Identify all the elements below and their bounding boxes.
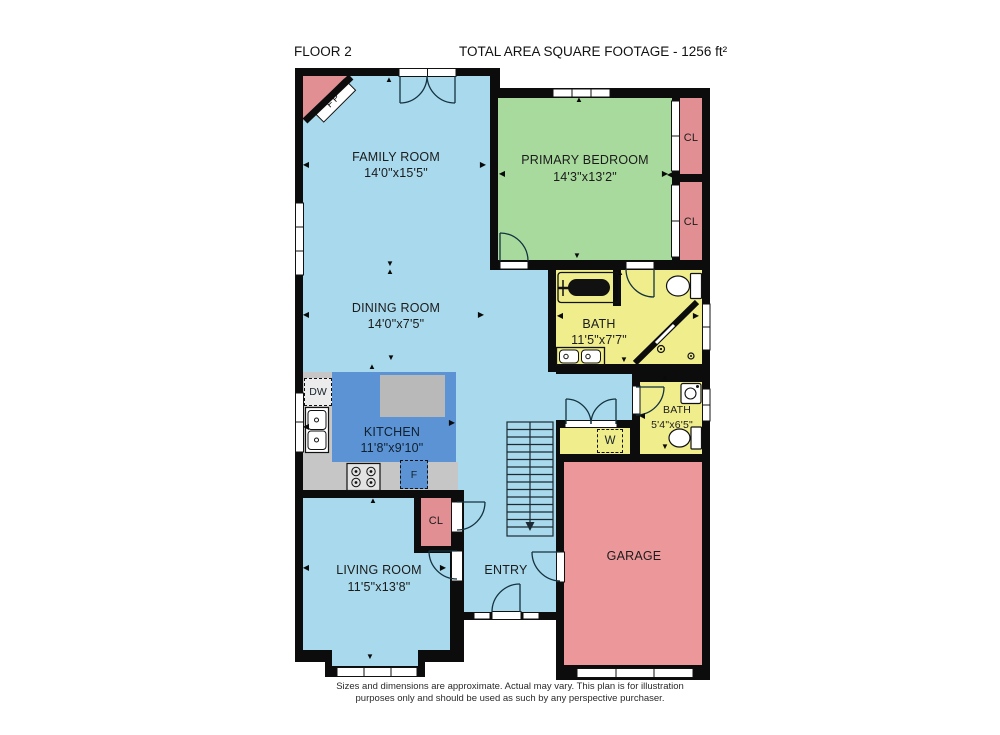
closet-entry-label: CL bbox=[429, 515, 443, 527]
living-room-dims: 11'5"x13'8" bbox=[348, 580, 411, 594]
garage-floor bbox=[564, 462, 702, 665]
kitchen-label: KITCHEN bbox=[364, 425, 420, 439]
dining-room-floor bbox=[303, 270, 548, 372]
disclaimer: Sizes and dimensions are approximate. Ac… bbox=[288, 681, 732, 705]
dim-arrow: ▼ bbox=[366, 653, 374, 661]
dim-arrow: ◀ bbox=[303, 161, 309, 169]
dim-arrow: ▼ bbox=[387, 354, 395, 362]
bath-small-floor bbox=[640, 382, 702, 454]
fridge-box: F bbox=[400, 460, 428, 489]
kitchen-counter-bottom bbox=[303, 462, 458, 490]
bath-main-label: BATH bbox=[582, 317, 615, 331]
dim-arrow: ▲ bbox=[369, 497, 377, 505]
entry-label: ENTRY bbox=[484, 563, 527, 577]
washer-label: W bbox=[605, 435, 616, 447]
dim-arrow: ▼ bbox=[661, 443, 669, 451]
living-bay-floor bbox=[332, 650, 418, 666]
dim-arrow: ▲ bbox=[368, 363, 376, 371]
dim-arrow: ▼ bbox=[620, 356, 628, 364]
passage-floor bbox=[552, 374, 632, 420]
disclaimer-line-1: Sizes and dimensions are approximate. Ac… bbox=[288, 681, 732, 693]
dim-arrow: ▲ bbox=[575, 96, 583, 104]
dim-arrow: ▲ bbox=[386, 268, 394, 276]
bath-main-floor bbox=[556, 270, 702, 364]
dishwasher-box: DW bbox=[304, 378, 332, 406]
dining-room-dims: 14'0"x7'5" bbox=[368, 317, 425, 331]
family-room-label: FAMILY ROOM bbox=[352, 150, 440, 164]
dim-arrow: ◀ bbox=[303, 564, 309, 572]
disclaimer-line-2: purposes only and should be used as such… bbox=[288, 693, 732, 705]
kitchen-dims: 11'8"x9'10" bbox=[361, 441, 424, 455]
family-room-dims: 14'0"x15'5" bbox=[364, 166, 428, 180]
living-room-label: LIVING ROOM bbox=[336, 563, 422, 577]
dining-room-label: DINING ROOM bbox=[352, 301, 440, 315]
primary-bedroom-label: PRIMARY BEDROOM bbox=[521, 153, 649, 167]
primary-bedroom-dims: 14'3"x13'2" bbox=[553, 170, 617, 184]
entry-floor bbox=[464, 490, 556, 612]
dim-arrow: ▶ bbox=[693, 312, 699, 320]
closet-top-label: CL bbox=[684, 132, 698, 144]
dim-arrow: ▶ bbox=[440, 564, 446, 572]
dim-arrow: ▲ bbox=[385, 76, 393, 84]
fridge-label: F bbox=[411, 469, 417, 481]
closet-bottom-label: CL bbox=[684, 216, 698, 228]
porch-notch bbox=[464, 620, 556, 680]
bath-small-dims: 5'4"x6'5" bbox=[651, 419, 693, 431]
dim-arrow: ▲ bbox=[661, 374, 669, 382]
total-area-label: TOTAL AREA SQUARE FOOTAGE - 1256 ft² bbox=[459, 44, 727, 59]
hall-floor bbox=[456, 372, 556, 490]
dim-arrow: ◀ bbox=[667, 171, 673, 179]
garage-label: GARAGE bbox=[607, 549, 662, 563]
washer-box: W bbox=[597, 429, 623, 453]
dim-arrow: ◀ bbox=[639, 412, 645, 420]
dishwasher-label: DW bbox=[309, 386, 327, 398]
dim-arrow: ▶ bbox=[478, 311, 484, 319]
dim-arrow: ▼ bbox=[573, 252, 581, 260]
bath-small-label: BATH bbox=[663, 404, 691, 416]
dim-arrow: ◀ bbox=[499, 170, 505, 178]
dim-arrow: ◀ bbox=[303, 423, 309, 431]
dim-arrow: ▶ bbox=[449, 419, 455, 427]
bath-main-dims: 11'5"x7'7" bbox=[571, 333, 627, 347]
dim-arrow: ◀ bbox=[557, 312, 563, 320]
floor-plan-page: FLOOR 2 TOTAL AREA SQUARE FOOTAGE - 1256… bbox=[0, 0, 1000, 735]
floor-label: FLOOR 2 bbox=[294, 44, 352, 59]
kitchen-island bbox=[380, 375, 445, 417]
dim-arrow: ▲ bbox=[616, 269, 624, 277]
dim-arrow: ◀ bbox=[303, 311, 309, 319]
dim-arrow: ▶ bbox=[480, 161, 486, 169]
